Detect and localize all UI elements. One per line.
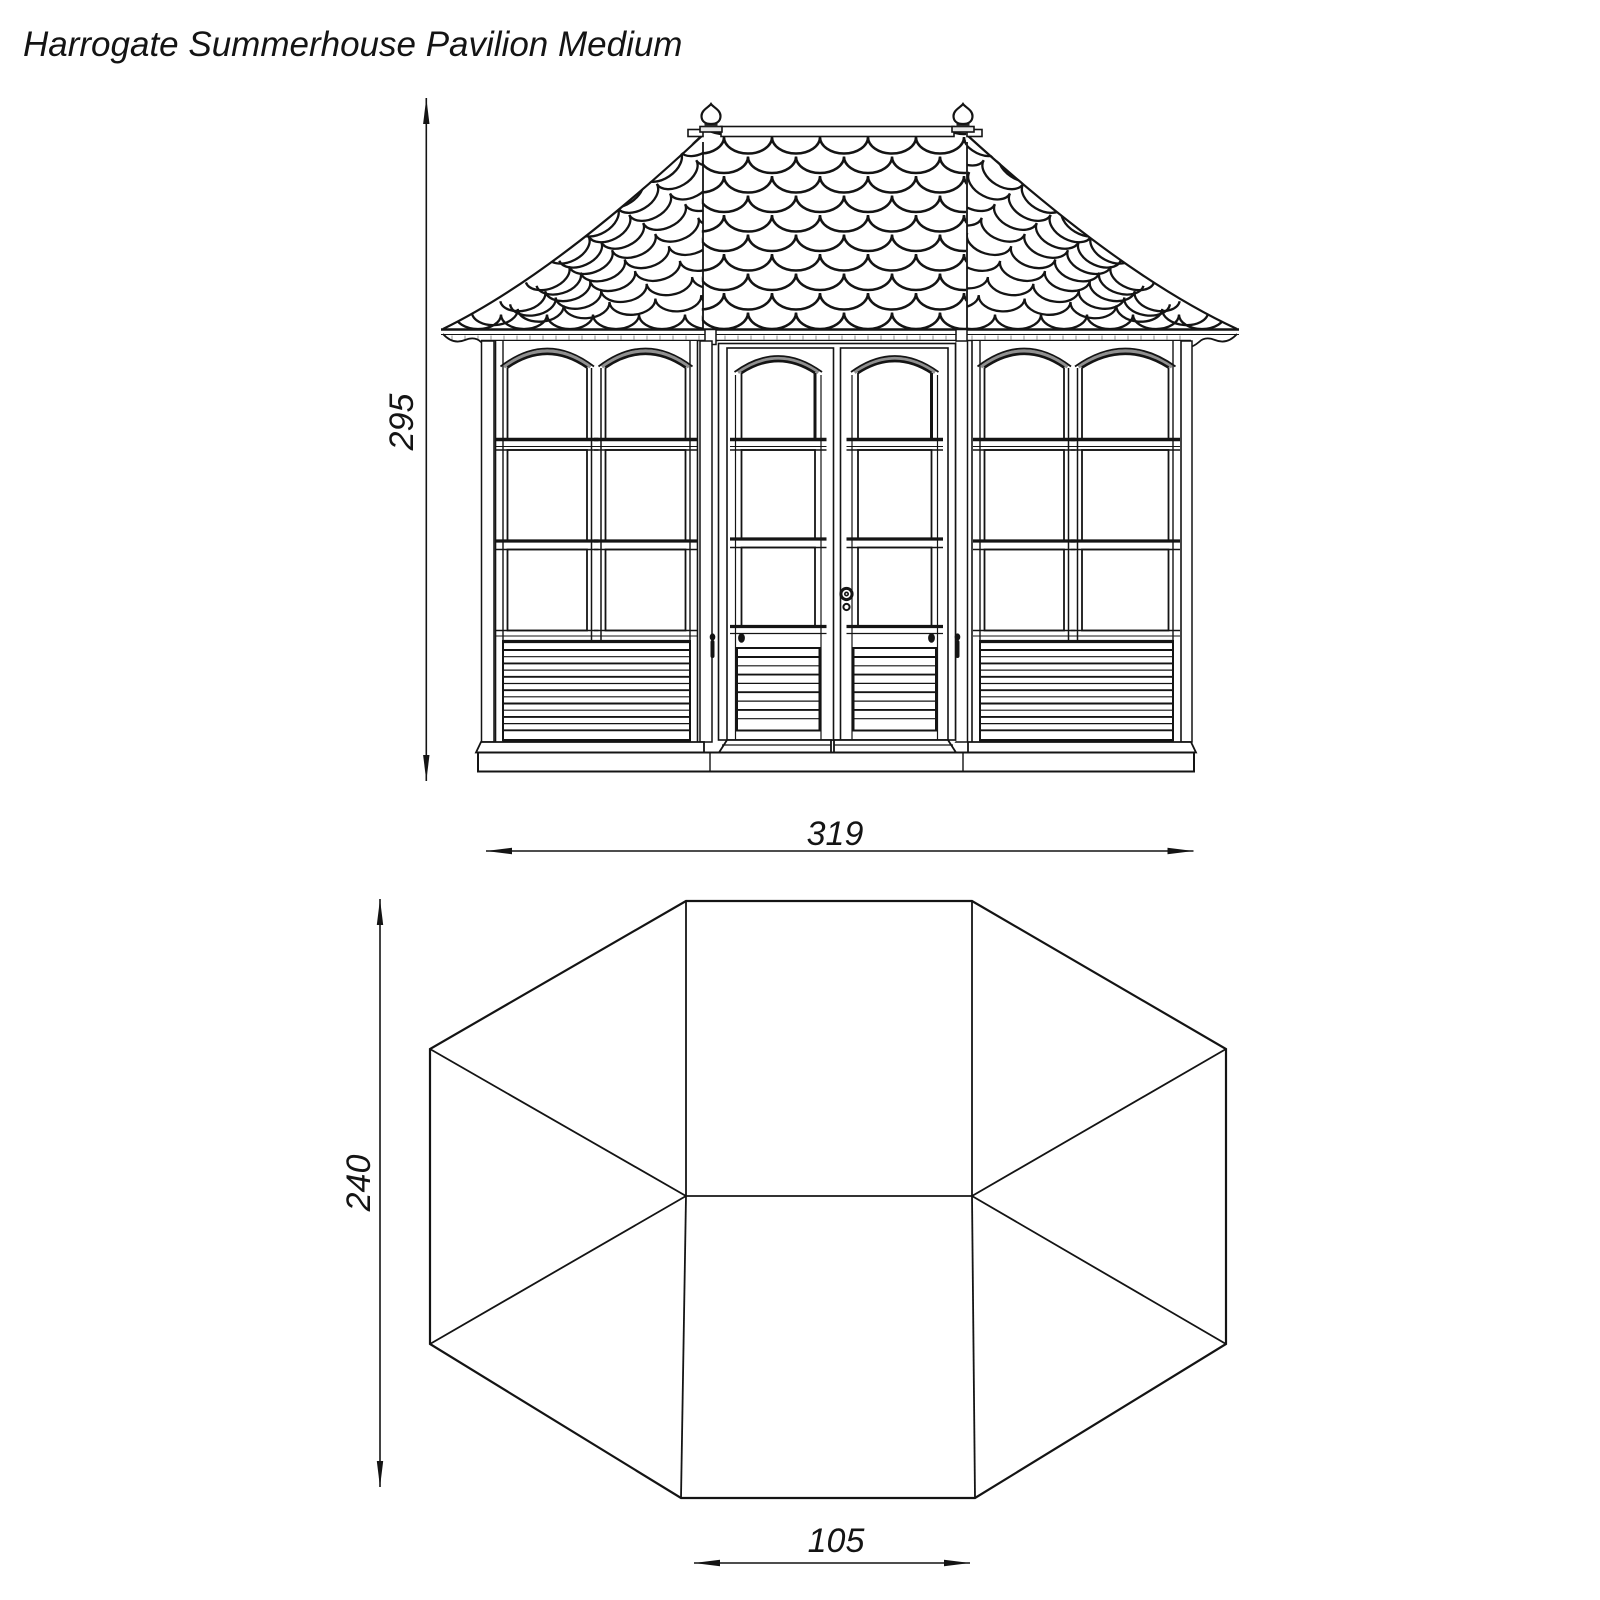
svg-text:295: 295 [383, 394, 421, 452]
svg-text:240: 240 [340, 1155, 378, 1213]
svg-text:319: 319 [807, 815, 864, 853]
svg-text:Harrogate Summerhouse Pavilion: Harrogate Summerhouse Pavilion Medium [23, 25, 682, 64]
svg-text:105: 105 [808, 1522, 865, 1560]
